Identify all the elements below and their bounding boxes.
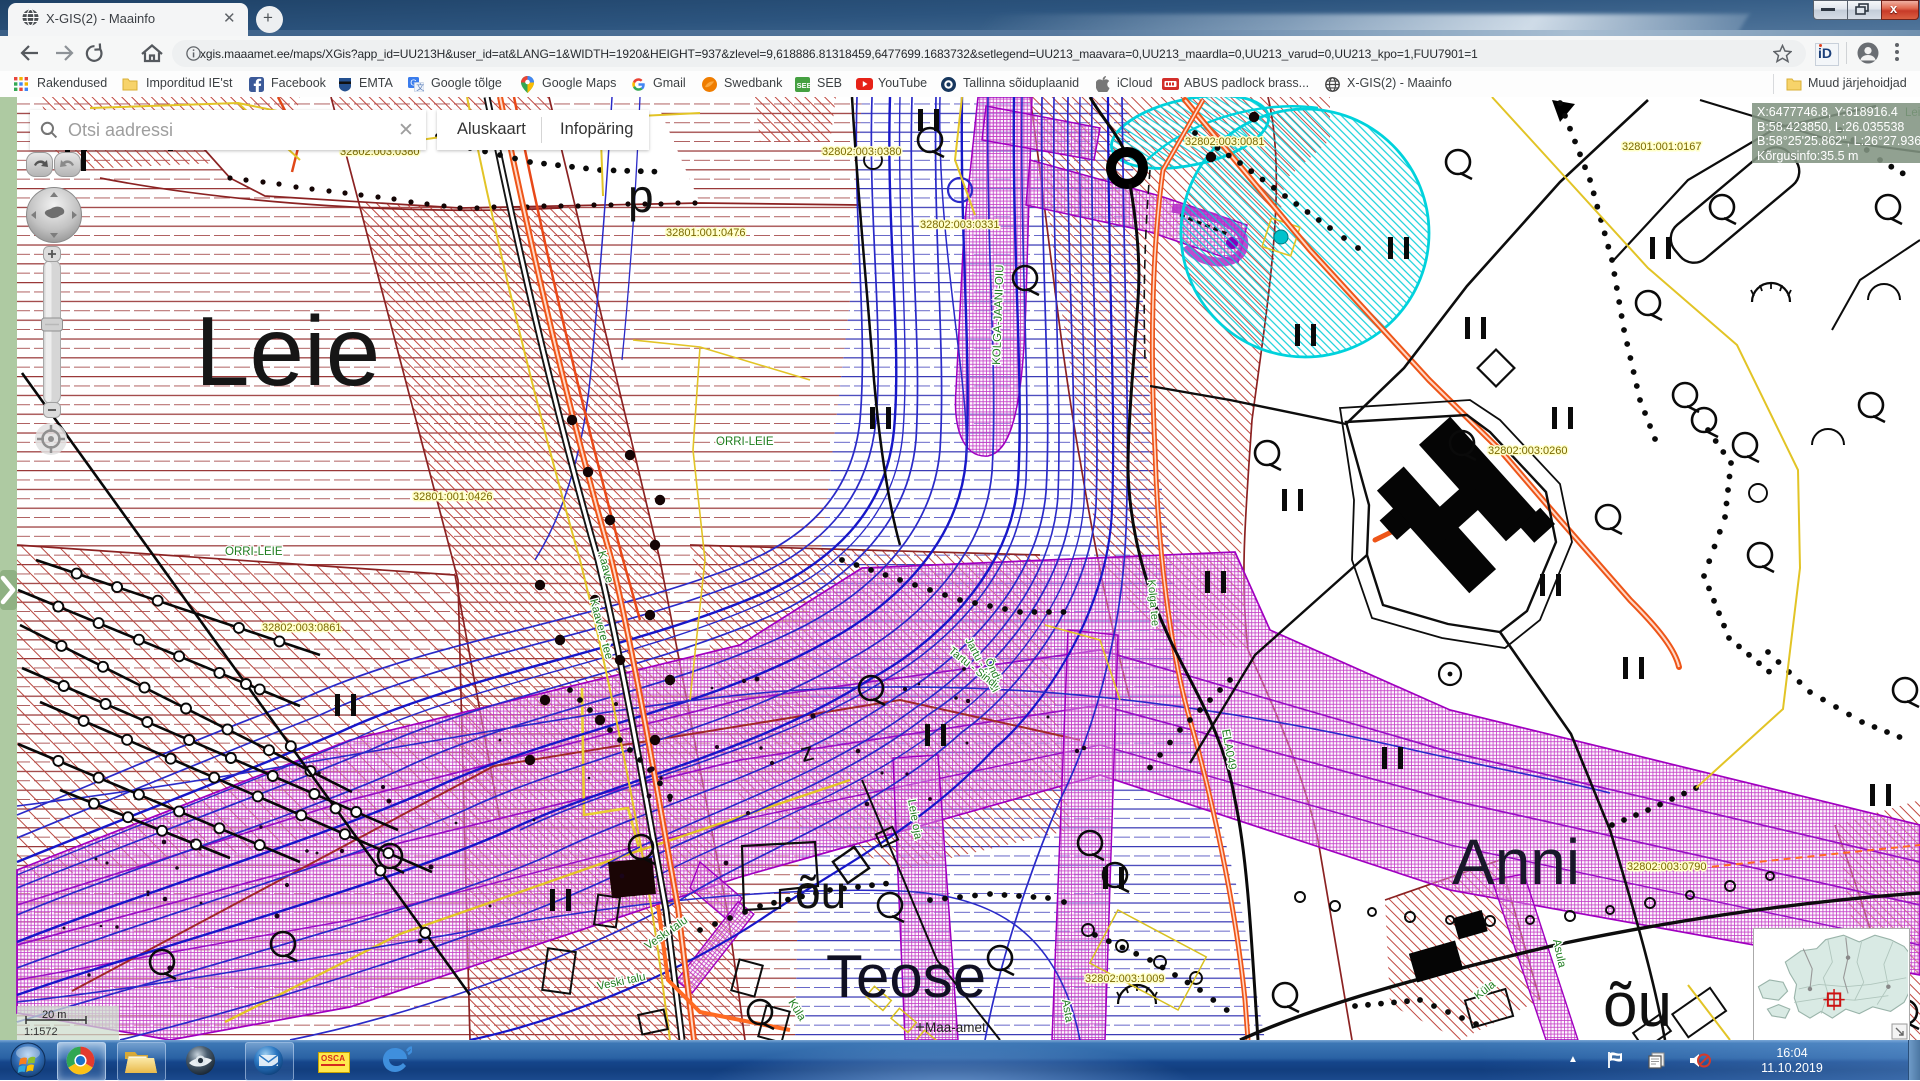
svg-text:32802:003:0380: 32802:003:0380 <box>822 146 902 158</box>
svg-text:ORRI-LEIE: ORRI-LEIE <box>716 436 774 448</box>
svg-text:õu: õu <box>795 866 846 918</box>
svg-text:32802:003:0331: 32802:003:0331 <box>920 219 1000 231</box>
svg-text:32802:003:0861: 32802:003:0861 <box>262 622 342 634</box>
svg-text:1:1572: 1:1572 <box>24 1026 58 1038</box>
svg-text:32801:001:0167: 32801:001:0167 <box>1622 141 1702 153</box>
svg-text:32801:001:0476: 32801:001:0476 <box>666 227 746 239</box>
svg-text:32802:003:0081: 32802:003:0081 <box>1185 136 1265 148</box>
svg-text:ORRI-LEIE: ORRI-LEIE <box>225 546 283 558</box>
svg-text:32801:001:0426: 32801:001:0426 <box>413 491 493 503</box>
svg-text:Maa-amet: Maa-amet <box>925 1020 986 1035</box>
svg-text:文: 文 <box>416 82 424 92</box>
svg-text:32802:003:1009: 32802:003:1009 <box>1085 973 1165 985</box>
svg-text:32802:003:0260: 32802:003:0260 <box>1488 445 1568 457</box>
svg-text:Leie: Leie <box>195 296 380 406</box>
svg-text:p: p <box>628 170 654 222</box>
svg-text:32802:003:0790: 32802:003:0790 <box>1627 861 1707 873</box>
svg-text:õu: õu <box>1603 971 1672 1040</box>
svg-text:Anni: Anni <box>1452 826 1580 898</box>
svg-text:20 m: 20 m <box>42 1009 66 1021</box>
svg-text:Teose: Teose <box>826 943 986 1010</box>
svg-text:SEB: SEB <box>797 81 810 90</box>
